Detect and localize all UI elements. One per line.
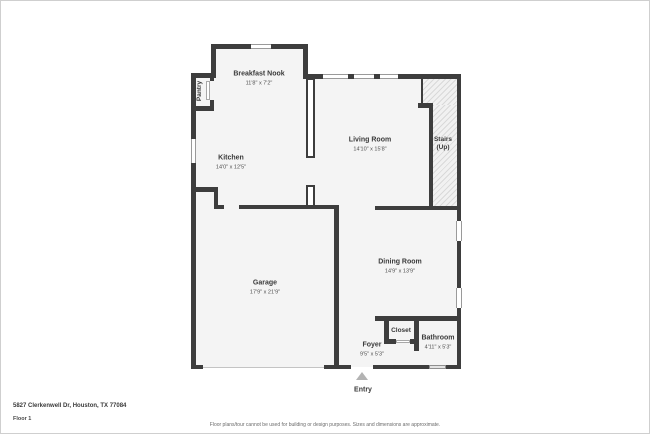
stairs-wall-vertical — [429, 103, 434, 208]
kitchen-living-divider — [306, 78, 315, 158]
pantry-door — [206, 81, 210, 100]
garage-label: Garage 17'9" x 21'9" — [250, 280, 280, 297]
living-room-label: Living Room 14'10" x 15'8" — [349, 137, 391, 154]
entry-label: Entry — [354, 387, 372, 396]
stairs-edge-line — [421, 79, 423, 105]
bottom-wall-right-stub — [446, 365, 461, 370]
breakfast-nook-right-wall — [303, 44, 308, 78]
bathroom-window — [429, 365, 446, 370]
stairs-label: Stairs (Up) — [434, 136, 452, 152]
bottom-wall-foyer-right — [373, 365, 429, 370]
room-name: Foyer — [360, 342, 384, 351]
room-dims: 9'5" x 5'3" — [360, 351, 384, 358]
pantry-right-stub-top — [210, 73, 215, 81]
garage-door-line — [203, 367, 324, 368]
living-room-window-1 — [323, 74, 348, 79]
pantry-right-stub-bottom — [210, 100, 215, 111]
room-sub: (Up) — [434, 144, 452, 152]
stairs-hatch-lower — [433, 105, 457, 207]
foyer-label: Foyer 9'5" x 5'3" — [360, 342, 384, 359]
room-dims: 14'10" x 15'8" — [349, 146, 391, 153]
bathroom-left-wall — [414, 316, 419, 351]
pantry-label: Pantry — [196, 81, 204, 101]
bottom-wall-foyer-left — [324, 365, 351, 370]
living-room-window-3 — [380, 74, 398, 79]
kitchen-jog-stub — [214, 205, 224, 210]
room-name: Closet — [391, 327, 411, 335]
bottom-wall-garage-stub — [191, 365, 203, 370]
floorplan-image: Breakfast Nook 11'8" x 7'2" Pantry Kitch… — [0, 0, 650, 434]
stairs-hatch-upper — [422, 79, 457, 105]
closet-bottom-wall-left — [384, 339, 396, 344]
garage-top-wall — [239, 205, 338, 210]
room-name: Breakfast Nook — [233, 71, 284, 80]
entry-arrow-icon — [356, 372, 368, 380]
room-name: Stairs — [434, 136, 452, 144]
breakfast-nook-top-wall-left — [211, 44, 251, 49]
breakfast-nook-window — [251, 44, 271, 49]
property-address: 5827 Clerkenwell Dr, Houston, TX 77084 — [13, 403, 126, 409]
breakfast-nook-label: Breakfast Nook 11'8" x 7'2" — [233, 71, 284, 88]
kitchen-left-window — [191, 139, 197, 163]
left-exterior-wall — [191, 73, 196, 369]
room-dims: 11'8" x 7'2" — [233, 80, 284, 87]
room-name: Garage — [250, 280, 280, 289]
room-name: Entry — [354, 387, 372, 396]
room-name: Pantry — [196, 81, 204, 101]
kitchen-label: Kitchen 14'0" x 12'5" — [216, 155, 246, 172]
dining-window-lower — [456, 288, 462, 308]
dining-room-label: Dining Room 14'9" x 13'9" — [378, 259, 422, 276]
bathroom-label: Bathroom 4'11" x 5'3" — [421, 335, 454, 352]
dining-window-upper — [456, 221, 462, 241]
closet-door — [396, 340, 410, 344]
room-name: Living Room — [349, 137, 391, 146]
room-dims: 14'9" x 13'9" — [378, 268, 422, 275]
room-dims: 14'0" x 12'5" — [216, 164, 246, 171]
disclaimer-text: Floor plans/tour cannot be used for buil… — [1, 422, 649, 428]
room-dims: 4'11" x 5'3" — [421, 344, 454, 351]
garage-right-wall — [334, 205, 339, 369]
closet-label: Closet — [391, 327, 411, 335]
room-dims: 17'9" x 21'9" — [250, 289, 280, 296]
dining-top-wall — [375, 206, 457, 211]
room-name: Bathroom — [421, 335, 454, 344]
living-room-window-2 — [354, 74, 374, 79]
room-name: Dining Room — [378, 259, 422, 268]
room-name: Kitchen — [216, 155, 246, 164]
